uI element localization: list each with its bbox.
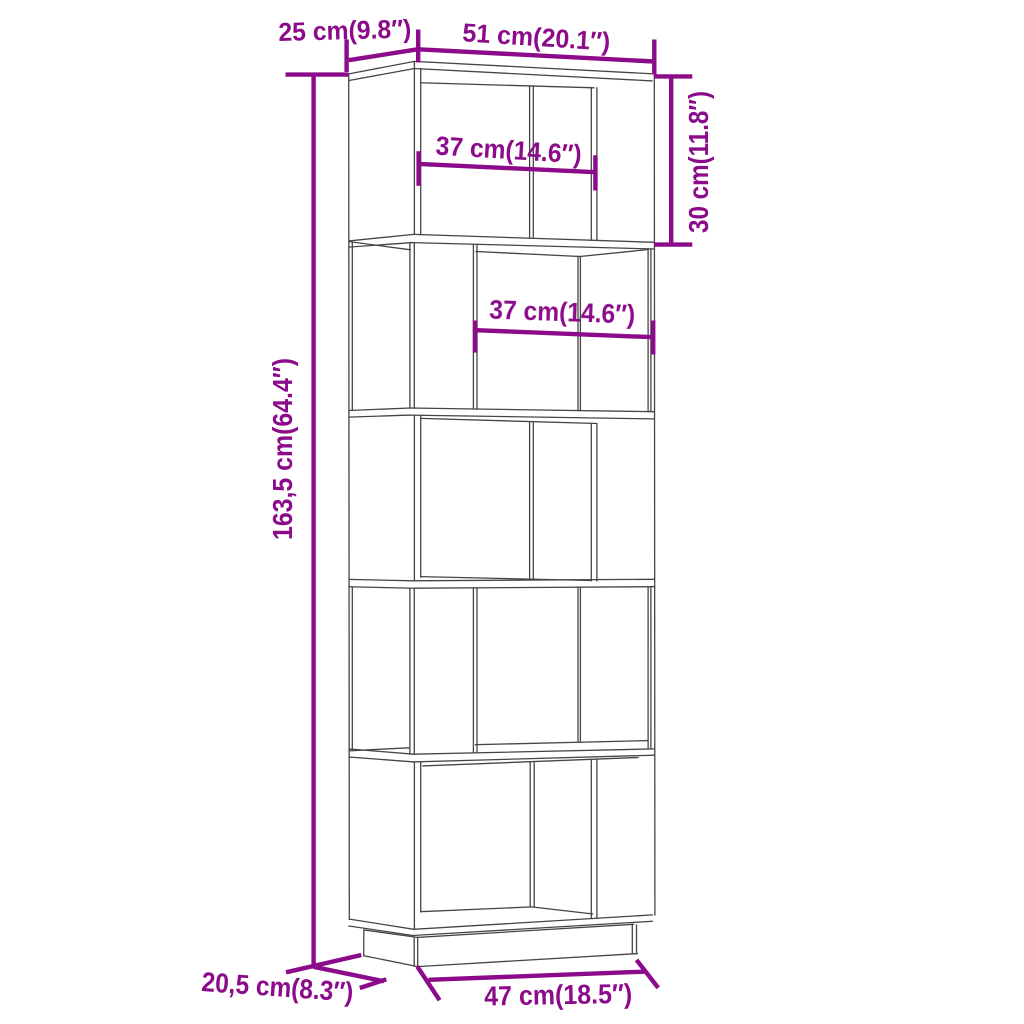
svg-text:47 cm(18.5″): 47 cm(18.5″) — [484, 978, 633, 1012]
svg-text:163,5 cm(64.4″): 163,5 cm(64.4″) — [267, 358, 298, 540]
svg-text:30 cm(11.8″): 30 cm(11.8″) — [683, 91, 714, 233]
svg-text:25 cm(9.8″): 25 cm(9.8″) — [278, 14, 412, 47]
svg-text:37 cm(14.6″): 37 cm(14.6″) — [489, 295, 636, 330]
